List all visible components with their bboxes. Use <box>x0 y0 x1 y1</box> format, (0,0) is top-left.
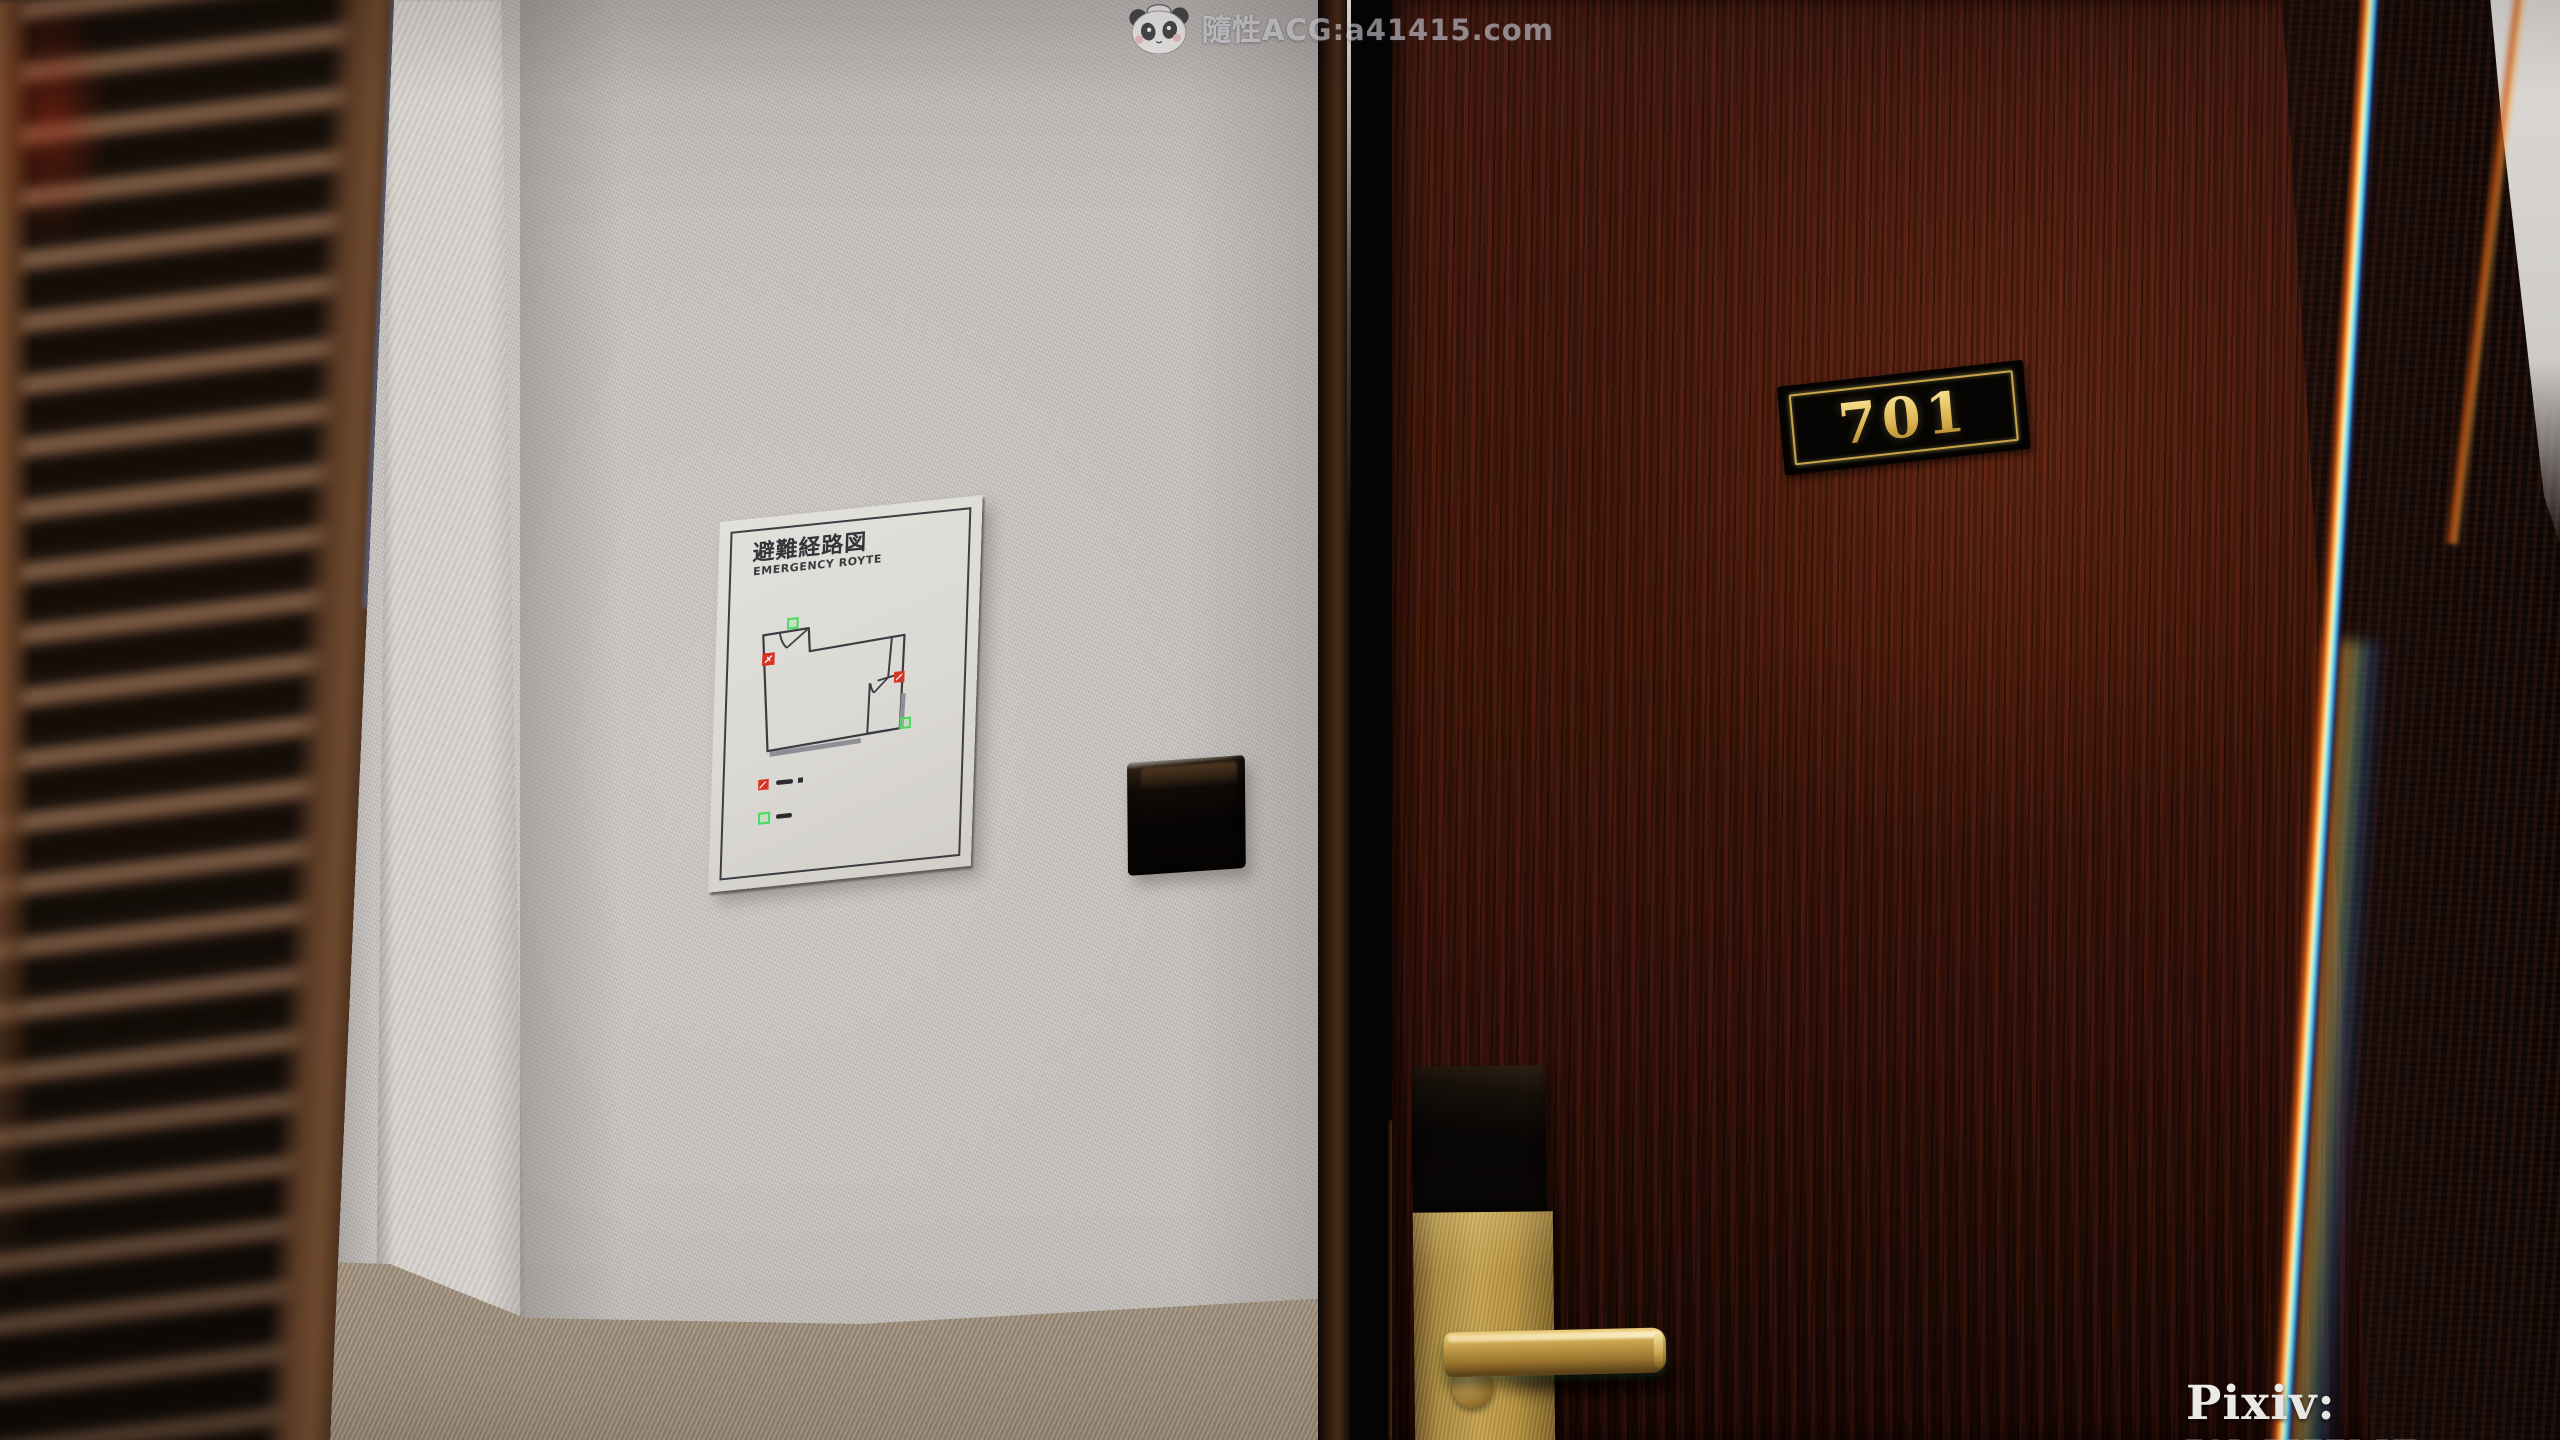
site-watermark-text: 隨性ACG:a41415.com <box>1202 7 1554 49</box>
site-watermark: 隨性ACG:a41415.com <box>1126 2 1554 54</box>
legend-exit-label-blob <box>776 813 792 819</box>
emergency-route-sign: 避難経路図 EMERGENCY ROYTE <box>708 495 983 893</box>
panda-icon <box>1126 2 1192 54</box>
key-card-reader[interactable] <box>1411 1065 1547 1217</box>
wall-card-switch[interactable] <box>1127 755 1246 876</box>
hotel-corridor-scene: 701 避難経路図 EMERGENCY ROYTE <box>0 0 2560 1440</box>
inner-walls <box>867 637 902 733</box>
wall-corner-shadow <box>520 0 640 1440</box>
door-frame <box>1318 0 1350 1440</box>
legend-fire-label-blob <box>776 779 793 785</box>
emergency-exit-marker <box>788 618 798 628</box>
legend-fire-dot <box>798 777 803 783</box>
artist-watermark: Pixiv: W_XHNB <box>2186 1376 2560 1440</box>
louver-corner-glow <box>0 0 110 250</box>
door-handle[interactable] <box>1444 1327 1667 1377</box>
frame-highlight-line <box>1347 0 1351 540</box>
emergency-exit-marker <box>900 718 910 728</box>
room-number: 701 <box>1836 383 1972 453</box>
floor-plan <box>737 590 949 873</box>
lock-escutcheon-plate <box>1413 1211 1555 1440</box>
door-frame-gap <box>1350 0 1394 1440</box>
legend-exit-swatch <box>759 813 769 824</box>
